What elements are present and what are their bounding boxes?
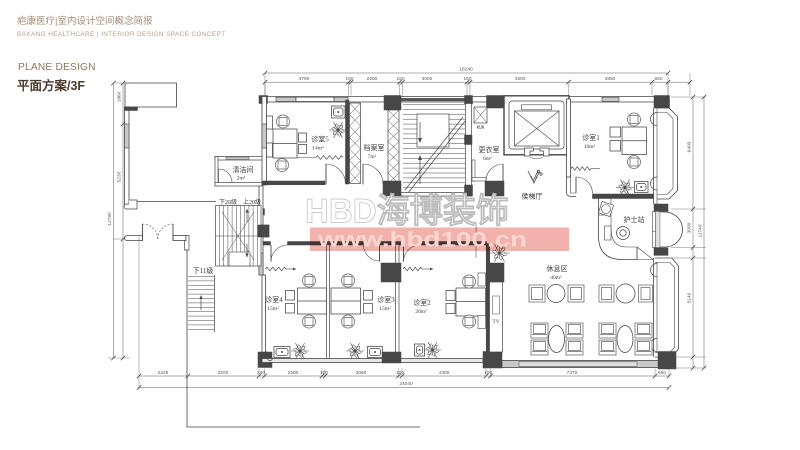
svg-text:5140: 5140 (687, 292, 693, 303)
svg-text:清洁间: 清洁间 (233, 165, 254, 174)
svg-text:5230: 5230 (117, 171, 123, 182)
svg-text:诊室3: 诊室3 (377, 295, 395, 304)
svg-text:1860: 1860 (117, 91, 123, 102)
svg-text:4500: 4500 (515, 76, 526, 82)
svg-text:www.hbd100.cn: www.hbd100.cn (317, 229, 527, 252)
svg-text:诊室1: 诊室1 (582, 133, 600, 142)
svg-text:4300: 4300 (439, 370, 450, 376)
svg-text:更衣室: 更衣室 (479, 145, 500, 154)
svg-text:休息区: 休息区 (547, 264, 568, 273)
svg-text:40m²: 40m² (550, 275, 562, 281)
svg-text:2500: 2500 (288, 370, 299, 376)
svg-text:6m²: 6m² (483, 156, 492, 162)
svg-text:12790: 12790 (107, 212, 113, 226)
svg-text:3000: 3000 (687, 222, 693, 233)
svg-text:240: 240 (257, 370, 265, 376)
svg-text:150: 150 (396, 76, 404, 82)
svg-text:3850: 3850 (605, 76, 616, 82)
svg-text:下11级: 下11级 (193, 266, 214, 275)
svg-text:20m²: 20m² (415, 309, 427, 315)
svg-text:上20级: 上20级 (243, 198, 261, 206)
svg-text:7470: 7470 (567, 370, 578, 376)
svg-text:诊室4: 诊室4 (265, 295, 283, 304)
svg-text:疤康医疗|室内设计空间概念简报: 疤康医疗|室内设计空间概念简报 (17, 15, 153, 27)
svg-text:100: 100 (484, 370, 492, 376)
svg-text:14m²: 14m² (312, 146, 324, 152)
svg-text:2229: 2229 (158, 370, 169, 376)
svg-text:平面方案/3F: 平面方案/3F (17, 78, 85, 93)
svg-text:HBD海博装饰: HBD海博装饰 (305, 193, 509, 231)
svg-text:11740: 11740 (698, 224, 704, 237)
svg-text:诊室5: 诊室5 (311, 135, 329, 144)
svg-text:2200: 2200 (367, 76, 378, 82)
svg-text:3790: 3790 (299, 76, 310, 82)
svg-text:100: 100 (345, 76, 353, 82)
svg-text:诊室2: 诊室2 (413, 298, 431, 307)
svg-text:650: 650 (654, 76, 662, 82)
svg-text:650: 650 (658, 370, 666, 376)
svg-text:150: 150 (463, 76, 471, 82)
svg-text:100: 100 (396, 370, 404, 376)
svg-text:24040: 24040 (399, 381, 413, 387)
svg-text:18240: 18240 (459, 67, 473, 73)
svg-text:PLANE DESIGN: PLANE DESIGN (18, 62, 96, 73)
svg-text:15m²: 15m² (267, 306, 279, 312)
svg-text:3060: 3060 (356, 370, 367, 376)
svg-text:档案室: 档案室 (364, 143, 385, 152)
svg-text:16m²: 16m² (584, 144, 596, 150)
svg-text:机房: 机房 (477, 124, 485, 130)
svg-text:15m²: 15m² (379, 306, 391, 312)
svg-text:7m²: 7m² (368, 154, 377, 160)
svg-text:2m²: 2m² (237, 176, 246, 182)
svg-text:侯梯厅: 侯梯厅 (522, 192, 543, 201)
svg-text:护士站: 护士站 (624, 215, 645, 224)
svg-text:6400: 6400 (687, 141, 693, 152)
svg-text:TV: TV (492, 319, 499, 325)
svg-text:3000: 3000 (422, 76, 433, 82)
svg-text:下20级: 下20级 (219, 198, 237, 206)
svg-text:BAKANG HEALTHCARE | INTERIOR D: BAKANG HEALTHCARE | INTERIOR DESIGN SPAC… (17, 31, 226, 38)
svg-text:100: 100 (320, 370, 328, 376)
svg-text:3200: 3200 (218, 370, 229, 376)
